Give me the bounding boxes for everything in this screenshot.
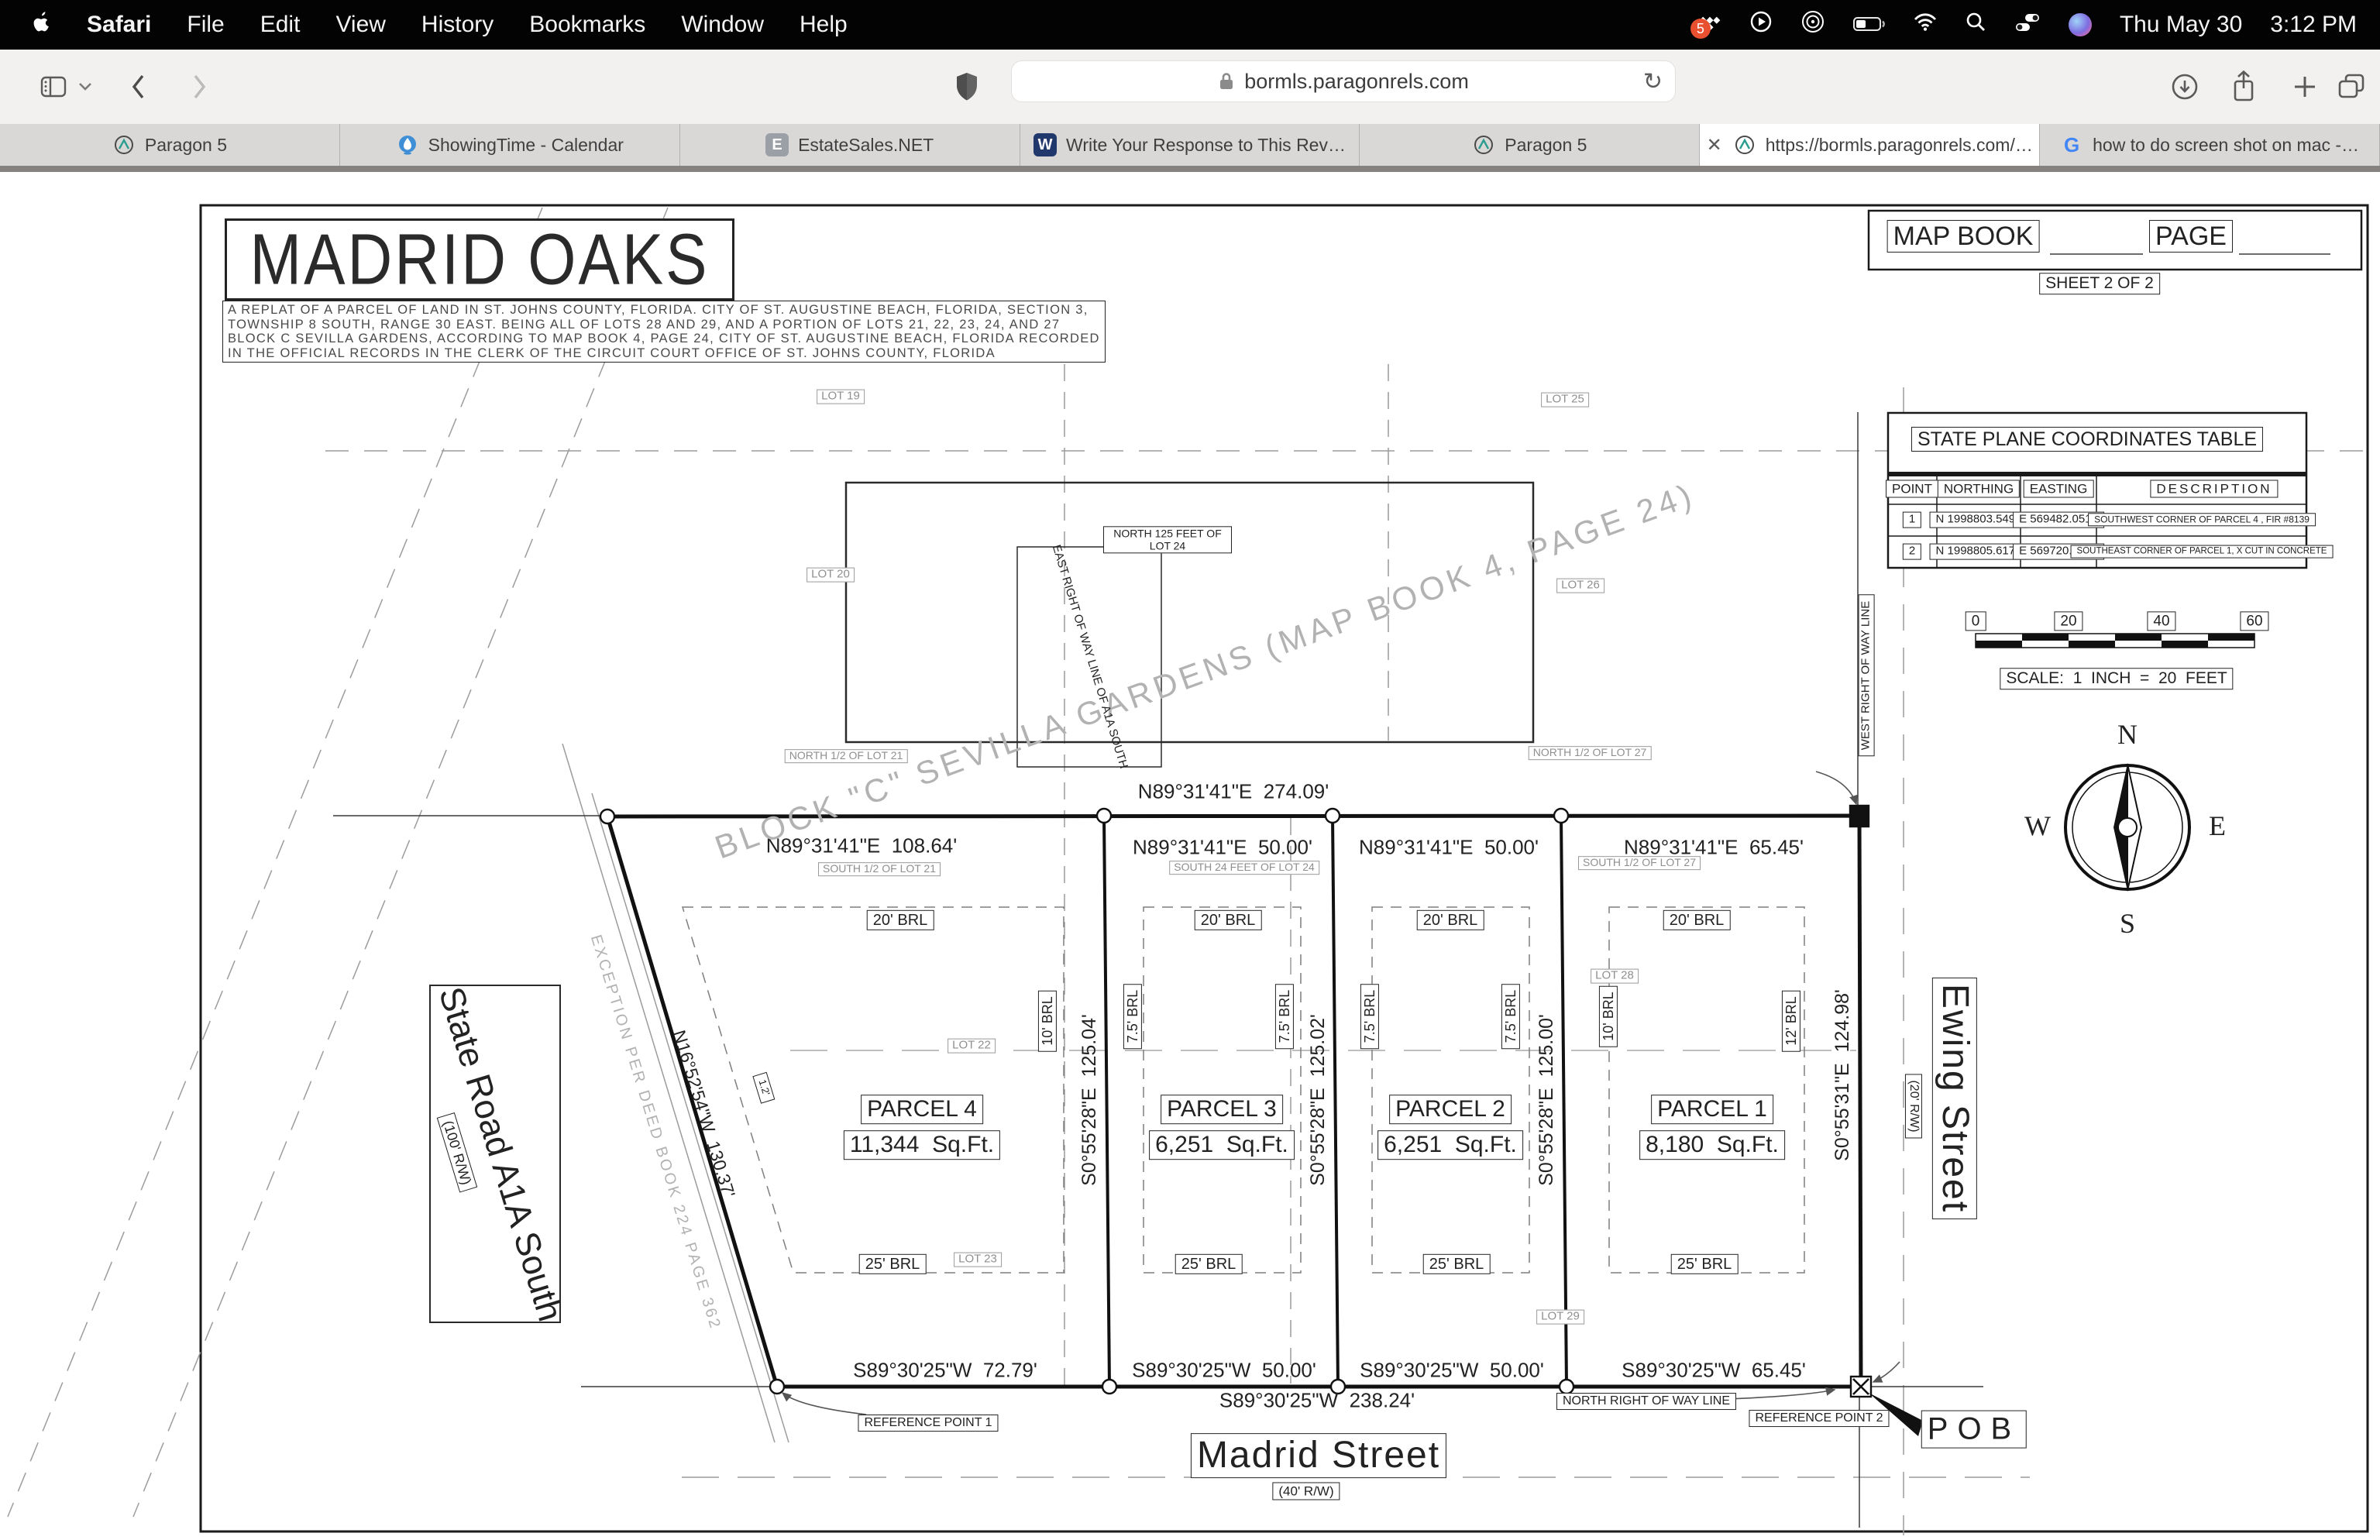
dim-north-p2: N89°31'41"E 50.00' [1359, 836, 1539, 858]
downloads-button[interactable] [2169, 71, 2200, 102]
tidal-menu-icon[interactable]: 5 [1698, 16, 1721, 33]
dim-line-p2p1: S0°55'28"E 125.00' [1536, 1014, 1557, 1186]
lot-23: LOT 23 [954, 1253, 1002, 1267]
parcel-3-area: 6,251 Sq.Ft. [1149, 1130, 1295, 1160]
lot21-south-half: SOUTH 1/2 OF LOT 21 [818, 862, 941, 876]
coords-header-point: POINT [1886, 480, 1938, 497]
reference-point-2: REFERENCE POINT 2 [1749, 1410, 1889, 1427]
tab-bar: Paragon 5 ShowingTime - Calendar E Estat… [0, 124, 2380, 166]
compass-w: W [2024, 810, 2051, 841]
control-center-icon[interactable] [2014, 12, 2041, 38]
tab-overview-button[interactable] [2337, 72, 2368, 101]
brl-20-p3: 20' BRL [1195, 910, 1262, 930]
brl-25-p1: 25' BRL [1671, 1254, 1739, 1274]
dim-south-p1: S89°30'25"W 65.45' [1622, 1359, 1806, 1381]
sidebar-toggle-button[interactable] [40, 75, 67, 98]
menu-file[interactable]: File [187, 12, 224, 38]
brl-25-p3: 25' BRL [1175, 1254, 1243, 1274]
tab-paragon-1[interactable]: Paragon 5 [0, 124, 340, 166]
menu-bar: Safari File Edit View History Bookmarks … [0, 0, 2380, 50]
brl-lines [683, 907, 1804, 1273]
tab-showingtime[interactable]: ShowingTime - Calendar [340, 124, 680, 166]
reference-point-1: REFERENCE POINT 1 [858, 1415, 998, 1432]
lot-25: LOT 25 [1541, 393, 1589, 407]
plat-document: MADRID OAKS A REPLAT OF A PARCEL OF LAND… [0, 0, 2380, 1540]
plat-title: MADRID OAKS [225, 218, 734, 301]
share-button[interactable] [2230, 70, 2258, 104]
dim-south-p3: S89°30'25"W 50.00' [1132, 1359, 1316, 1381]
label-frames [430, 547, 1161, 1322]
write-response-favicon: W [1034, 133, 1057, 156]
menu-clock[interactable]: 3:12 PM [2270, 12, 2357, 38]
sidebar-chevron-icon[interactable] [77, 81, 93, 92]
coords-r2-point: 2 [1903, 544, 1921, 560]
lot27-south-half: SOUTH 1/2 OF LOT 27 [1578, 856, 1701, 870]
screen: Safari File Edit View History Bookmarks … [0, 0, 2380, 1540]
scale-tick-0: 0 [1966, 611, 1986, 631]
apple-menu[interactable] [33, 11, 51, 39]
estatesales-favicon: E [765, 133, 789, 156]
dim-east-boundary: S0°55'31"E 124.98' [1831, 989, 1853, 1161]
tab-bormls-active[interactable]: ✕ https://bormls.paragonrels.com/… [1700, 124, 2040, 166]
dim-south-p2: S89°30'25"W 50.00' [1360, 1359, 1544, 1381]
play-status-icon[interactable] [1749, 10, 1773, 40]
dim-north-total: N89°31'41"E 274.09' [1138, 780, 1329, 803]
west-row-label: WEST RIGHT OF WAY LINE [1859, 595, 1875, 757]
parcel-1-area: 8,180 Sq.Ft. [1639, 1130, 1785, 1160]
coords-r1-description: SOUTHWEST CORNER OF PARCEL 4 , FIR #8139 [2088, 513, 2316, 526]
menu-view[interactable]: View [335, 12, 385, 38]
page-label: PAGE [2149, 220, 2233, 253]
menu-history[interactable]: History [421, 12, 494, 38]
brl-side-p4e: 10' BRL [1038, 990, 1057, 1051]
parcel-4-area: 11,344 Sq.Ft. [844, 1130, 1000, 1160]
madrid-street-label: Madrid Street [1191, 1433, 1446, 1478]
brl-side-p3e: 7.5' BRL [1275, 984, 1294, 1049]
browser-toolbar: bormls.paragonrels.com ↻ [0, 50, 2380, 125]
scale-tick-60: 60 [2240, 611, 2268, 631]
map-book-label: MAP BOOK [1887, 220, 2040, 253]
sheet-label: SHEET 2 OF 2 [2039, 273, 2160, 294]
brl-side-p1w: 10' BRL [1599, 985, 1618, 1047]
brl-side-p1e: 12' BRL [1782, 990, 1800, 1051]
block-c-outline [846, 483, 1533, 742]
screen-mirroring-icon[interactable] [1800, 9, 1825, 40]
leader-lines [782, 772, 1900, 1415]
lot-29: LOT 29 [1536, 1310, 1584, 1325]
lot27-north-half: NORTH 1/2 OF LOT 27 [1529, 746, 1652, 760]
lot24-south-24ft: SOUTH 24 FEET OF LOT 24 [1169, 861, 1319, 875]
menu-app-name[interactable]: Safari [87, 12, 151, 38]
tab-paragon-2[interactable]: Paragon 5 [1360, 124, 1700, 166]
dim-south-total: S89°30'25"W 238.24' [1219, 1389, 1415, 1411]
window-edge [0, 166, 2380, 172]
tab-estatesales[interactable]: E EstateSales.NET [680, 124, 1020, 166]
address-bar[interactable]: bormls.paragonrels.com ↻ [1011, 60, 1676, 102]
menu-window[interactable]: Window [681, 12, 764, 38]
brl-20-p4: 20' BRL [867, 910, 934, 930]
menu-edit[interactable]: Edit [260, 12, 301, 38]
siri-icon[interactable] [2069, 13, 2092, 36]
lot-26: LOT 26 [1556, 579, 1604, 593]
lot-19: LOT 19 [817, 390, 865, 404]
coords-r2-description: SOUTHEAST CORNER OF PARCEL 1, X CUT IN C… [2071, 545, 2334, 559]
compass-n: N [2117, 719, 2138, 750]
apple-icon [33, 11, 51, 33]
paragon-favicon [1733, 133, 1756, 156]
menu-help[interactable]: Help [800, 12, 848, 38]
paragon-favicon [112, 133, 136, 156]
scale-bar [1976, 634, 2254, 648]
lock-icon [1218, 71, 1235, 91]
parcel-2-name: PARCEL 2 [1389, 1095, 1512, 1124]
brl-25-p4: 25' BRL [859, 1254, 927, 1274]
wifi-icon[interactable] [1914, 12, 1937, 38]
lot21-north-half: NORTH 1/2 OF LOT 21 [785, 749, 908, 763]
compass-e: E [2209, 810, 2226, 841]
lot-28: LOT 28 [1591, 969, 1639, 984]
parcel-2-area: 6,251 Sq.Ft. [1377, 1130, 1523, 1160]
scale-tick-20: 20 [2054, 611, 2082, 631]
plat-description: A REPLAT OF A PARCEL OF LAND IN ST. JOHN… [222, 301, 1106, 363]
lot-22: LOT 22 [948, 1039, 996, 1054]
url-text: bormls.paragonrels.com [1244, 70, 1469, 94]
madrid-rw: (40' R/W) [1272, 1482, 1340, 1500]
close-tab-icon[interactable]: ✕ [1707, 134, 1722, 156]
menu-bookmarks[interactable]: Bookmarks [529, 12, 645, 38]
compass-s: S [2120, 908, 2135, 939]
back-button[interactable] [129, 72, 147, 101]
pob-label: POB [1921, 1411, 2027, 1449]
ewing-street-label: Ewing Street [1932, 978, 1977, 1219]
brl-side-p2w: 7.5' BRL [1360, 984, 1379, 1049]
scale-caption: SCALE: 1 INCH = 20 FEET [2000, 668, 2233, 689]
brl-side-p3w: 7.5' BRL [1123, 984, 1142, 1049]
parcel-3-name: PARCEL 3 [1161, 1095, 1283, 1124]
lot24-north: NORTH 125 FEET OF LOT 24 [1103, 526, 1232, 553]
privacy-shield-icon[interactable] [954, 71, 979, 102]
menu-date[interactable]: Thu May 30 [2120, 12, 2242, 38]
coords-header-description: DESCRIPTION [2150, 480, 2278, 497]
north-row-label: NORTH RIGHT OF WAY LINE [1556, 1393, 1736, 1410]
spotlight-icon[interactable] [1965, 11, 1986, 39]
dim-line-p4p3: S0°55'28"E 125.04' [1078, 1014, 1100, 1186]
tab-write-response[interactable]: W Write Your Response to This Rev… [1020, 124, 1360, 166]
tab-google-search[interactable]: G how to do screen shot on mac -… [2040, 124, 2380, 166]
dim-line-p3p2: S0°55'28"E 125.02' [1307, 1014, 1329, 1186]
battery-icon[interactable] [1853, 12, 1886, 38]
brl-20-p1: 20' BRL [1663, 910, 1731, 930]
notification-badge: 5 [1690, 19, 1711, 39]
google-favicon: G [2060, 133, 2083, 156]
coords-header-easting: EASTING [2024, 480, 2094, 497]
scale-tick-40: 40 [2147, 611, 2175, 631]
coords-table-title: STATE PLANE COORDINATES TABLE [1911, 427, 2263, 452]
brl-25-p2: 25' BRL [1423, 1254, 1491, 1274]
dim-south-p4: S89°30'25"W 72.79' [853, 1359, 1037, 1381]
brl-side-p2e: 7.5' BRL [1501, 984, 1520, 1049]
new-tab-button[interactable] [2292, 74, 2318, 100]
parcel-4-name: PARCEL 4 [861, 1095, 983, 1124]
coords-header-northing: NORTHING [1938, 480, 2020, 497]
brl-20-p2: 20' BRL [1417, 910, 1484, 930]
reload-icon[interactable]: ↻ [1643, 68, 1663, 95]
lot-20: LOT 20 [807, 568, 855, 583]
parcel-1-name: PARCEL 1 [1651, 1095, 1773, 1124]
forward-button[interactable] [191, 72, 209, 101]
showingtime-favicon [396, 133, 419, 156]
paragon-favicon [1472, 133, 1495, 156]
ewing-rw: (20' R/W) [1905, 1074, 1922, 1138]
coords-r1-point: 1 [1903, 512, 1921, 528]
compass-rose [2065, 764, 2189, 891]
dim-north-p3: N89°31'41"E 50.00' [1133, 836, 1312, 858]
